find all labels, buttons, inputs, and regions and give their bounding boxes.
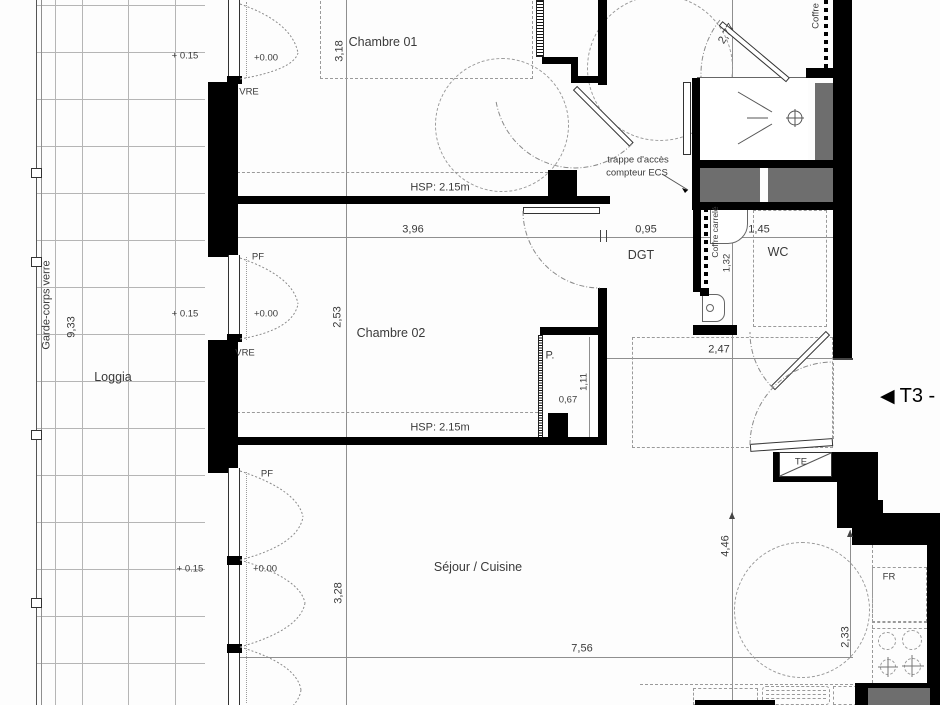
- dim-label: 3,28: [333, 582, 346, 603]
- plan-linework: [0, 0, 940, 705]
- dim-label: 7,56: [571, 643, 592, 656]
- dim-label: 0,95: [635, 224, 656, 237]
- window-type-label: PF: [261, 470, 273, 481]
- trappe-note-line2: compteur ECS: [606, 169, 668, 180]
- left-arrow-icon: ◀: [880, 387, 895, 406]
- room-label-sejour: Séjour / Cuisine: [434, 560, 522, 574]
- hob-symbol: [878, 655, 924, 677]
- fridge-label: FR: [883, 573, 896, 584]
- room-label-chambre02: Chambre 02: [357, 326, 426, 340]
- level-label: +0.00: [254, 310, 278, 321]
- trappe-note-line1: trappe d'accès: [607, 156, 669, 167]
- dim-label: 1,32: [723, 254, 734, 273]
- level-label: +0.00: [254, 54, 278, 65]
- level-label: + 0.15: [172, 52, 199, 63]
- dim-label: 2,33: [840, 626, 853, 647]
- dim-arrow: [847, 530, 853, 537]
- dim-label: 4,46: [720, 535, 733, 556]
- window-type-label: VRE: [235, 349, 255, 360]
- dim-label: 1,45: [748, 224, 769, 237]
- hsp-label-2: HSP: 2.15m: [410, 422, 469, 435]
- room-label-loggia: Loggia: [94, 370, 132, 384]
- closet-label: P.: [546, 350, 555, 363]
- dim-label: 1,11: [580, 373, 591, 391]
- apartment-marker-text: T3 -: [900, 386, 936, 406]
- shower-symbol: [738, 92, 804, 144]
- level-label: +0.00: [253, 565, 277, 576]
- dim-arrow: [729, 512, 735, 519]
- dim-label: 2,53: [332, 306, 345, 327]
- guardrail-label: Garde-corps verre: [41, 260, 54, 349]
- dim-label: 3,96: [402, 224, 423, 237]
- dim-label: 3,18: [334, 40, 347, 61]
- apartment-marker: ◀ T3 -: [880, 383, 940, 409]
- trappe-arrowhead: [682, 188, 688, 193]
- room-label-wc: WC: [768, 245, 789, 259]
- room-label-chambre01: Chambre 01: [349, 35, 418, 49]
- level-label: + 0.15: [177, 565, 204, 576]
- window-type-label: VRE: [239, 88, 259, 99]
- dim-label: 0,67: [559, 396, 578, 407]
- floor-plan-t3: Chambre 01 Chambre 02 Séjour / Cuisine L…: [0, 0, 940, 705]
- dim-label: 9,33: [66, 316, 79, 337]
- level-label: + 0.15: [172, 310, 199, 321]
- room-label-dgt: DGT: [628, 248, 654, 262]
- te-label: TE: [795, 458, 807, 469]
- dim-label: 2,47: [708, 344, 729, 357]
- hsp-label-1: HSP: 2.15m: [410, 182, 469, 195]
- coffre-top-label: Coffre: [812, 3, 823, 29]
- window-type-label: PF: [252, 253, 264, 264]
- coffre-carrele-label: Coffre carrelé: [711, 206, 721, 257]
